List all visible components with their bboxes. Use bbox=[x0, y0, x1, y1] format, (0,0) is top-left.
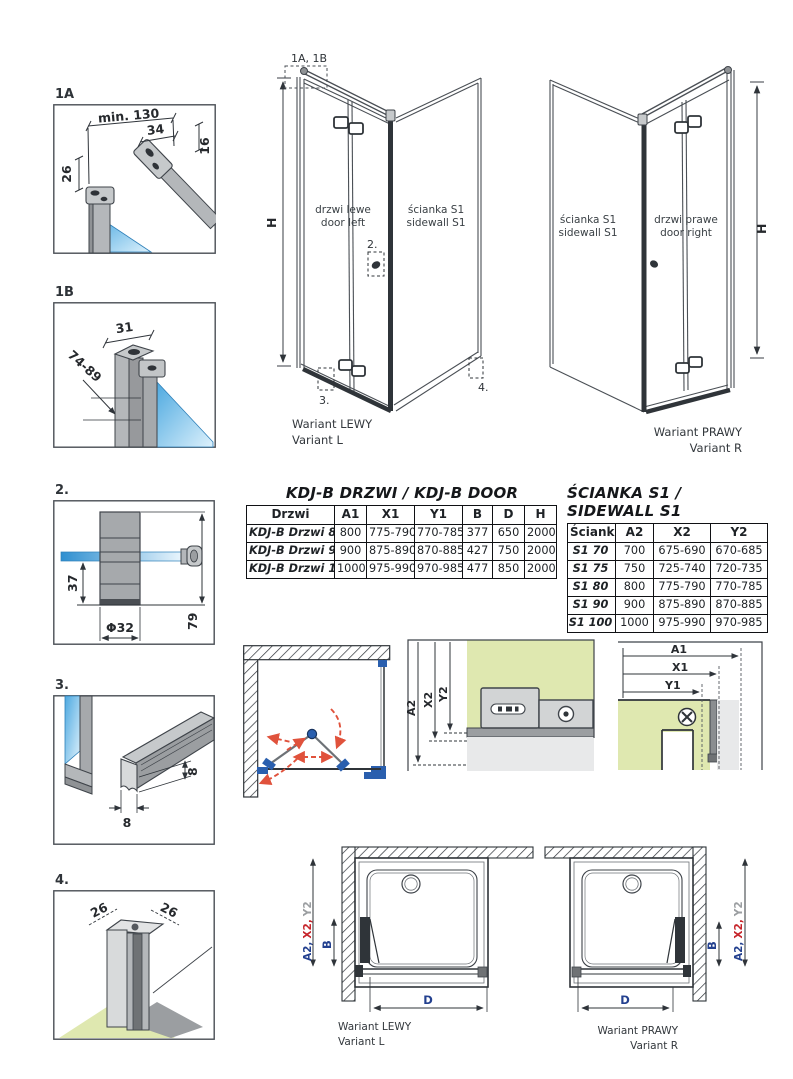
table-row: S1 90900875-890870-885 bbox=[568, 597, 768, 615]
caption-plan-left: Wariant LEWYVariant L bbox=[338, 1020, 411, 1050]
wall-hatch-left bbox=[342, 847, 355, 1001]
table-row: S1 80800775-790770-785 bbox=[568, 579, 768, 597]
dim-8-bottom: 8 bbox=[123, 815, 132, 830]
door-knob bbox=[370, 260, 381, 271]
col-y1: Y1 bbox=[415, 506, 463, 525]
table-row: KDJ-B Drzwi 80800775-790770-785377650200… bbox=[247, 525, 557, 543]
dim-b: B bbox=[705, 941, 719, 950]
wall-label-en: sidewall S1 bbox=[406, 217, 465, 229]
dim-34: 34 bbox=[146, 121, 165, 138]
col-b: B bbox=[463, 506, 493, 525]
wall-profile bbox=[115, 345, 165, 447]
section-sidewall-detail: A2 X2 Y2 bbox=[405, 638, 595, 772]
corner-bracket-top bbox=[378, 660, 387, 667]
col-x1: X1 bbox=[367, 506, 415, 525]
profile-notch bbox=[662, 732, 693, 770]
wall-hatch-top bbox=[545, 847, 703, 858]
col-a1: A1 bbox=[335, 506, 367, 525]
dim-x2: X2 bbox=[422, 692, 435, 708]
marker-3: 3. bbox=[319, 394, 330, 407]
col-d: D bbox=[493, 506, 525, 525]
caption-variant-left: Wariant LEWYVariant L bbox=[292, 416, 372, 448]
fold-hinge-bottom bbox=[676, 357, 702, 373]
marker-4: 4. bbox=[478, 381, 489, 394]
sidewall-table-panel: ŚCIANKA S1 / SIDEWALL S1 Ścianka A2 X2 Y… bbox=[567, 484, 769, 633]
table-row: S1 75750725-740720-735 bbox=[568, 561, 768, 579]
table-row: KDJ-B Drzwi 1001000975-990970-9854778502… bbox=[247, 561, 557, 579]
dim-16: 16 bbox=[197, 137, 212, 155]
wall-hatch-right bbox=[693, 847, 706, 1001]
iso-view-left: 1A, 1B H drzwi lewe door left ścianka S1… bbox=[263, 48, 520, 460]
detail-3-drawing: 8 8 bbox=[53, 695, 215, 845]
wall-label-pl: ścianka S1 bbox=[408, 204, 464, 216]
table-row: S1 70700675-690670-685 bbox=[568, 543, 768, 561]
wall-profile bbox=[86, 187, 114, 253]
table-row: S1 1001000975-990970-985 bbox=[568, 615, 768, 633]
detail-4-drawing: 26 26 bbox=[53, 890, 215, 1040]
caption-variant-right: Wariant PRAWYVariant R bbox=[618, 424, 742, 456]
detail-3-label: 3. bbox=[55, 678, 69, 693]
wall-hatch-top bbox=[347, 847, 533, 858]
col-h: H bbox=[525, 506, 557, 525]
door-table-title: KDJ-B DRZWI / KDJ-B DOOR bbox=[246, 484, 558, 502]
dim-x1: X1 bbox=[672, 661, 688, 674]
wall-label-pl: ścianka S1 bbox=[560, 214, 616, 226]
bar-connector bbox=[725, 67, 732, 74]
dim-37: 37 bbox=[65, 575, 80, 592]
dim-y1: Y1 bbox=[664, 679, 681, 692]
dim-79: 79 bbox=[185, 613, 200, 630]
wall-hatch-left bbox=[244, 651, 258, 797]
plan-swing-view bbox=[243, 645, 415, 803]
wall-zone-gray bbox=[467, 737, 594, 771]
sidewall-table-title: ŚCIANKA S1 / SIDEWALL S1 bbox=[567, 484, 769, 520]
section-door-detail: A1 X1 Y1 bbox=[615, 640, 790, 772]
door-table: Drzwi A1 X1 Y1 B D H KDJ-B Drzwi 8080077… bbox=[246, 505, 557, 579]
dim-26: 26 bbox=[59, 165, 74, 183]
door-label-en: door left bbox=[321, 217, 365, 229]
fold-hinge-top bbox=[334, 117, 363, 134]
bottom-threshold bbox=[303, 369, 391, 411]
door-table-panel: KDJ-B DRZWI / KDJ-B DOOR Drzwi A1 X1 Y1 … bbox=[246, 484, 558, 579]
dim-h: H bbox=[754, 224, 769, 234]
col-x2: X2 bbox=[654, 524, 711, 543]
detail-2-drawing: 37 79 Φ32 bbox=[53, 500, 215, 645]
swing-arrows bbox=[261, 709, 340, 783]
dim-a2x2y2: A2,X2,Y2 bbox=[733, 901, 745, 961]
bottom-threshold bbox=[646, 390, 730, 412]
dim-a2: A2 bbox=[405, 700, 418, 716]
callout-1a-1b: 1A, 1B bbox=[291, 52, 327, 65]
iso-view-right: H ścianka S1 sidewall S1 drzwi prawe doo… bbox=[538, 58, 793, 468]
detail-1a-drawing: min. 130 34 16 26 bbox=[53, 104, 216, 254]
fold-hinge-pivot bbox=[307, 729, 316, 738]
bar-end-cap bbox=[386, 110, 395, 121]
plan-view-left: A2,X2,Y2 B D bbox=[303, 843, 535, 1015]
dim-y2: Y2 bbox=[437, 686, 450, 703]
dim-phi32: Φ32 bbox=[106, 620, 134, 635]
col-drzwi: Drzwi bbox=[247, 506, 335, 525]
detail-1b-drawing: 31 74-89 bbox=[53, 302, 216, 448]
fold-hinge-bottom bbox=[339, 360, 365, 376]
screw-icon bbox=[679, 709, 696, 726]
dim-a2x2y2: A2,X2,Y2 bbox=[303, 901, 314, 961]
fold-hinge-top bbox=[675, 116, 701, 133]
enclosure-outline bbox=[355, 858, 488, 987]
wall-hatch-top bbox=[244, 646, 390, 660]
dim-d: D bbox=[620, 993, 630, 1007]
plan-view-right: B A2,X2,Y2 D bbox=[528, 843, 768, 1015]
dim-h: H bbox=[264, 218, 279, 228]
dim-b: B bbox=[320, 940, 334, 949]
marker-2: 2. bbox=[367, 238, 378, 251]
sidewall-table-header-row: Ścianka A2 X2 Y2 bbox=[568, 524, 768, 543]
dim-31: 31 bbox=[115, 319, 134, 336]
folded-door bbox=[257, 729, 350, 774]
bar-end-cap bbox=[638, 114, 647, 125]
knob-section bbox=[100, 512, 140, 605]
door-profile-bar bbox=[710, 700, 717, 758]
dim-d: D bbox=[423, 993, 433, 1007]
corner-bracket-bottom bbox=[364, 766, 386, 779]
door-label-pl: drzwi prawe bbox=[654, 214, 718, 226]
detail-2-label: 2. bbox=[55, 483, 69, 498]
sidewall-table: Ścianka A2 X2 Y2 S1 70700675-690670-685 … bbox=[567, 523, 768, 633]
col-scianka: Ścianka bbox=[568, 524, 616, 543]
spec-sheet-page: 1A min. 130 34 bbox=[0, 0, 793, 1079]
col-a2: A2 bbox=[616, 524, 654, 543]
detail-4-label: 4. bbox=[55, 873, 69, 888]
door-table-header-row: Drzwi A1 X1 Y1 B D H bbox=[247, 506, 557, 525]
dim-a1: A1 bbox=[671, 643, 687, 656]
profile-strip bbox=[467, 728, 594, 737]
table-row: KDJ-B Drzwi 90900875-890870-885427750200… bbox=[247, 543, 557, 561]
caption-plan-right: Wariant PRAWYVariant R bbox=[592, 1024, 678, 1054]
wall-zone-gray bbox=[717, 700, 739, 770]
door-label-pl: drzwi lewe bbox=[315, 204, 371, 216]
handle-end bbox=[181, 546, 202, 566]
col-y2: Y2 bbox=[711, 524, 768, 543]
detail-1b-label: 1B bbox=[55, 285, 74, 300]
door-knob bbox=[649, 259, 660, 269]
bar-connector bbox=[301, 68, 308, 75]
detail-1a-label: 1A bbox=[55, 87, 74, 102]
wall-label-en: sidewall S1 bbox=[558, 227, 617, 239]
dim-8-side: 8 bbox=[185, 767, 200, 776]
door-label-en: door right bbox=[660, 227, 712, 239]
